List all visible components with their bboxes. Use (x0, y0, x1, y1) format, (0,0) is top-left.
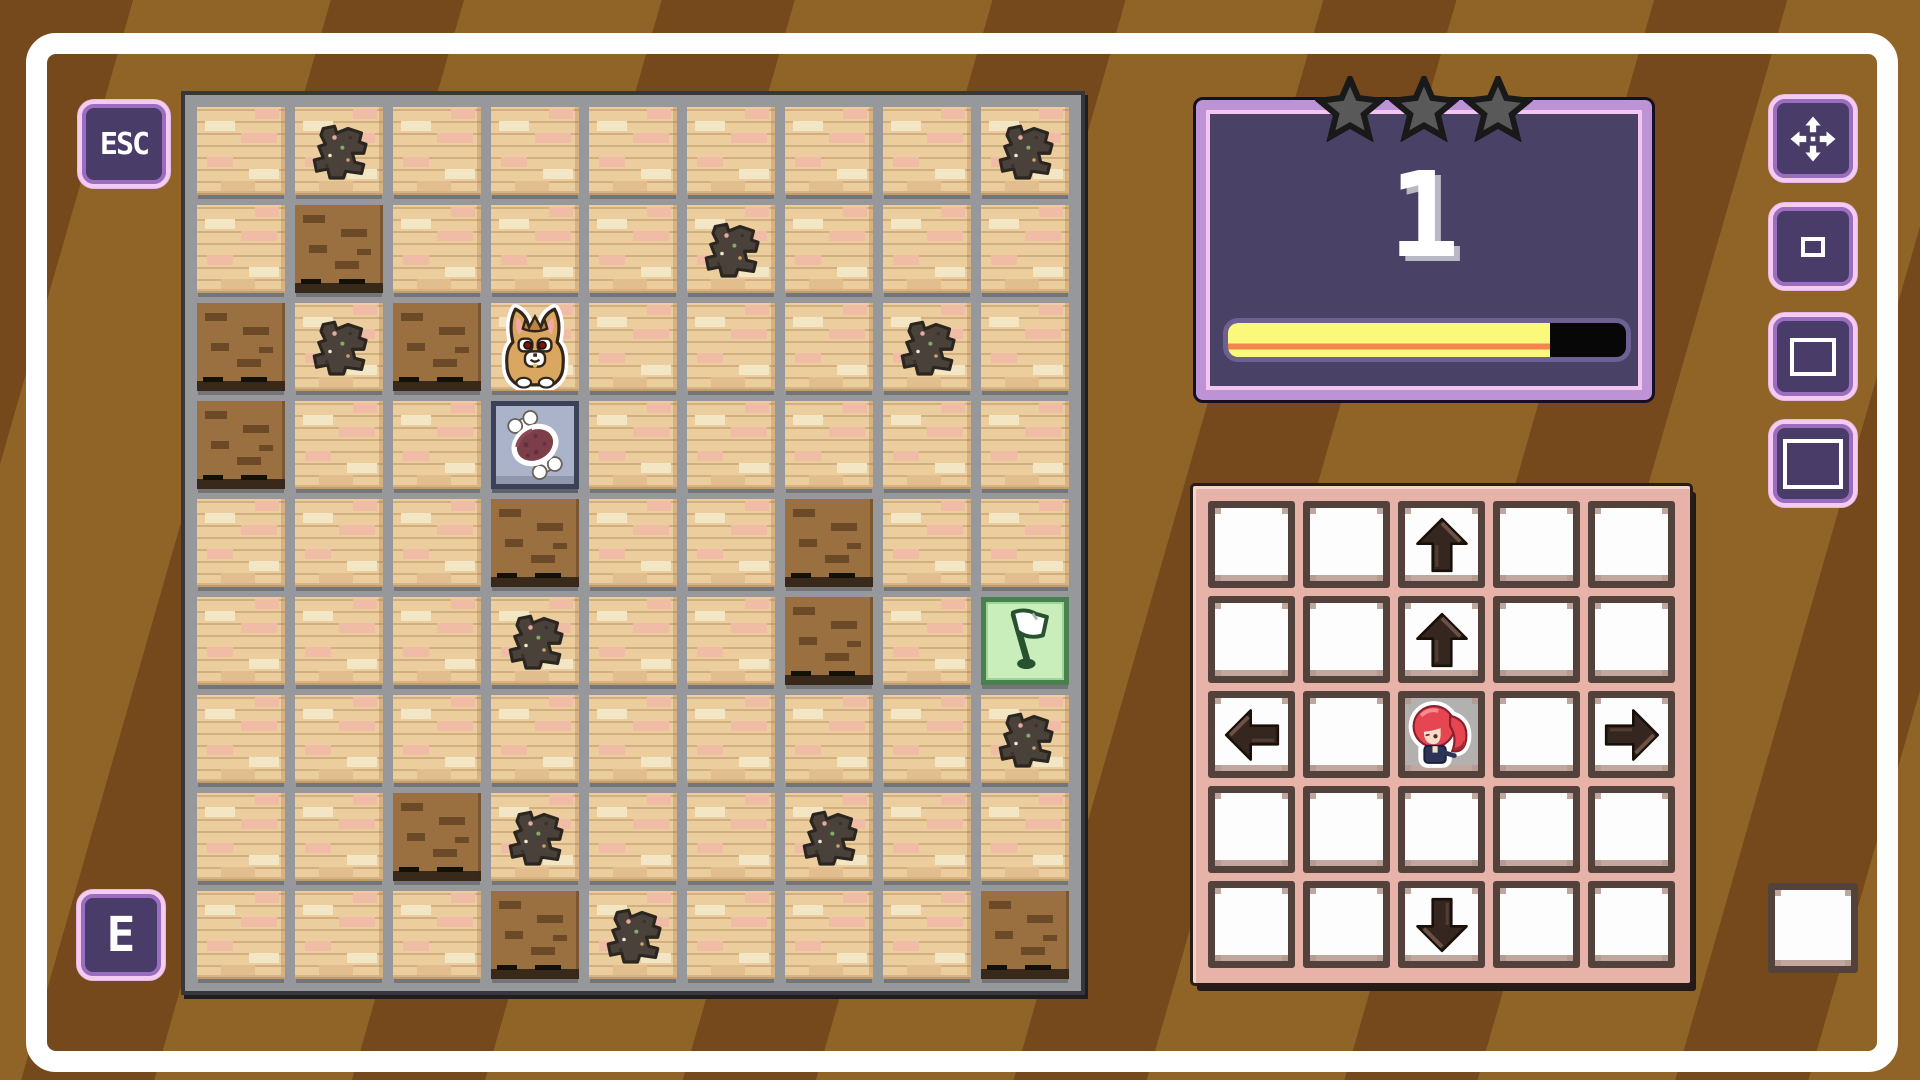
board-tile-dirt-floor (491, 891, 579, 979)
pad-empty-slot[interactable] (1303, 596, 1390, 683)
board-tile-brick-floor (883, 499, 971, 587)
dirt-splat-sprite (989, 115, 1061, 187)
dirt-splat-sprite (793, 801, 865, 873)
esc-button[interactable]: ESC (78, 100, 170, 188)
view-small-button[interactable] (1769, 203, 1857, 290)
board-tile-brick-floor (393, 891, 481, 979)
pad-empty-slot[interactable] (1303, 881, 1390, 968)
pad-arrow-up[interactable] (1398, 596, 1485, 683)
board-tile-brick-floor (393, 695, 481, 783)
board-tile-brick-floor (393, 401, 481, 489)
board-tile-dirt-splat (981, 107, 1069, 195)
star-icon (1315, 76, 1385, 142)
player-character-sprite (1405, 696, 1478, 774)
board-tile-brick-floor (687, 695, 775, 783)
pad-empty-slot[interactable] (1208, 596, 1295, 683)
board-tile-brick-floor (589, 205, 677, 293)
pad-empty-slot[interactable] (1208, 786, 1295, 873)
board-tile-brick-floor (295, 793, 383, 881)
board-tile-brick-floor (687, 793, 775, 881)
arrow-down-icon (1411, 894, 1473, 956)
board-tile-dirt-splat (589, 891, 677, 979)
board-tile-dirt-splat (295, 107, 383, 195)
star-rating (1196, 76, 1652, 146)
esc-button-label: ESC (100, 127, 148, 162)
dirt-splat-sprite (891, 311, 963, 383)
board-tile-dirt-splat (687, 205, 775, 293)
view-large-button[interactable] (1769, 420, 1857, 507)
pad-empty-slot[interactable] (1493, 881, 1580, 968)
pad-empty-slot[interactable] (1493, 596, 1580, 683)
board-tile-brick-floor (981, 793, 1069, 881)
level-number: 1 (1196, 156, 1652, 274)
board-tile-brick-floor (883, 793, 971, 881)
board-tile-brick-floor (981, 499, 1069, 587)
board-tile-brick-floor (785, 205, 873, 293)
pad-empty-slot[interactable] (1398, 786, 1485, 873)
board-tile-brick-floor (197, 107, 285, 195)
board-tile-brick-floor (197, 597, 285, 685)
goal-flag-sprite (990, 606, 1060, 676)
player-fox-sprite (493, 303, 577, 391)
star-icon (1315, 76, 1385, 146)
pad-empty-slot[interactable] (1303, 691, 1390, 778)
pad-empty-slot[interactable] (1303, 501, 1390, 588)
board-tile-brick-floor (589, 107, 677, 195)
board-tile-brick-floor (883, 891, 971, 979)
board-tile-brick-floor (883, 597, 971, 685)
board-tile-brick-floor (883, 695, 971, 783)
star-icon (1463, 76, 1533, 142)
board-tile-brick-floor (687, 303, 775, 391)
move-tool-button[interactable] (1769, 95, 1857, 182)
pad-empty-slot[interactable] (1588, 881, 1675, 968)
pad-empty-slot[interactable] (1588, 786, 1675, 873)
board-tile-brick-floor (197, 499, 285, 587)
board-tile-dirt-floor (197, 401, 285, 489)
board-tile-dirt-splat (295, 303, 383, 391)
command-pad (1190, 483, 1693, 986)
pad-empty-slot[interactable] (1208, 881, 1295, 968)
arrow-right-icon (1601, 704, 1663, 766)
dirt-splat-sprite (499, 801, 571, 873)
arrow-up-icon (1411, 514, 1473, 576)
board-tile-brick-floor (197, 891, 285, 979)
pad-empty-slot[interactable] (1588, 596, 1675, 683)
game-board (181, 91, 1085, 995)
interact-e-button[interactable]: E (77, 890, 165, 980)
progress-bar (1223, 318, 1631, 362)
board-tile-dirt-floor (197, 303, 285, 391)
pad-arrow-right[interactable] (1588, 691, 1675, 778)
move-arrows-icon (1786, 112, 1840, 166)
board-tile-brick-floor (295, 695, 383, 783)
dirt-splat-sprite (303, 311, 375, 383)
board-tile-brick-floor (981, 401, 1069, 489)
spare-command-slot[interactable] (1768, 883, 1858, 973)
board-tile-brick-floor (295, 401, 383, 489)
board-tile-brick-floor (393, 107, 481, 195)
star-icon (1389, 76, 1459, 142)
board-tile-brick-floor (589, 695, 677, 783)
board-tile-brick-floor (589, 793, 677, 881)
board-tile-dirt-splat (785, 793, 873, 881)
view-medium-button[interactable] (1769, 313, 1857, 400)
board-tile-brick-floor (197, 695, 285, 783)
board-tile-brick-floor (981, 205, 1069, 293)
board-tile-goal-flag (981, 597, 1069, 685)
board-tile-brick-floor (589, 597, 677, 685)
board-tile-dirt-splat (981, 695, 1069, 783)
pad-empty-slot[interactable] (1303, 786, 1390, 873)
board-tile-brick-floor (295, 597, 383, 685)
board-tile-dirt-splat (491, 793, 579, 881)
board-tile-dirt-floor (393, 303, 481, 391)
pad-empty-slot[interactable] (1588, 501, 1675, 588)
board-tile-dirt-floor (981, 891, 1069, 979)
game-screen: { "hud": { "esc_button_label": "ESC", "i… (0, 0, 1920, 1080)
pad-empty-slot[interactable] (1493, 691, 1580, 778)
board-tile-dirt-splat (883, 303, 971, 391)
board-tile-dirt-floor (785, 499, 873, 587)
progress-bar-fill (1228, 323, 1550, 357)
board-tile-brick-floor (393, 597, 481, 685)
board-tile-brick-floor (197, 793, 285, 881)
board-tile-brick-floor (295, 891, 383, 979)
board-tile-brick-floor (883, 205, 971, 293)
square-medium-icon (1790, 338, 1836, 376)
board-tile-brick-floor (687, 597, 775, 685)
square-large-icon (1783, 439, 1843, 489)
dirt-splat-sprite (303, 115, 375, 187)
dirt-splat-sprite (989, 703, 1061, 775)
board-tile-brick-floor (785, 401, 873, 489)
board-tile-dirt-floor (491, 499, 579, 587)
board-tile-brick-floor (589, 401, 677, 489)
board-tile-dirt-splat (491, 597, 579, 685)
pad-arrow-up[interactable] (1398, 501, 1485, 588)
board-tile-brick-floor (589, 499, 677, 587)
board-tile-brick-floor (785, 891, 873, 979)
pad-empty-slot[interactable] (1493, 501, 1580, 588)
board-tile-brick-floor (491, 205, 579, 293)
arrow-up-icon (1411, 609, 1473, 671)
board-tile-brick-floor (687, 891, 775, 979)
star-icon (1463, 76, 1533, 146)
board-tile-brick-floor (197, 205, 285, 293)
board-tile-brick-floor (687, 401, 775, 489)
arrow-left-icon (1221, 704, 1283, 766)
board-tile-brick-floor (491, 107, 579, 195)
dirt-splat-sprite (597, 899, 669, 971)
board-tile-meat-item (491, 401, 579, 489)
dirt-splat-sprite (695, 213, 767, 285)
interact-e-button-label: E (107, 907, 136, 963)
board-tile-brick-floor (883, 401, 971, 489)
star-icon (1389, 76, 1459, 146)
pad-empty-slot[interactable] (1208, 501, 1295, 588)
board-tile-brick-floor (687, 107, 775, 195)
board-tile-dirt-floor (393, 793, 481, 881)
board-tile-brick-floor (981, 303, 1069, 391)
pad-character-card[interactable] (1398, 691, 1485, 778)
board-tile-dirt-floor (785, 597, 873, 685)
pad-empty-slot[interactable] (1493, 786, 1580, 873)
dirt-splat-sprite (499, 605, 571, 677)
square-small-icon (1801, 237, 1825, 257)
board-tile-brick-floor (785, 303, 873, 391)
board-tile-brick-floor (785, 107, 873, 195)
board-tile-brick-floor (785, 695, 873, 783)
board-tile-brick-floor (589, 303, 677, 391)
board-tile-brick-floor (491, 695, 579, 783)
board-tile-brick-floor (295, 499, 383, 587)
pad-arrow-left[interactable] (1208, 691, 1295, 778)
board-tile-player-fox (491, 303, 579, 391)
board-tile-brick-floor (393, 205, 481, 293)
board-tile-brick-floor (393, 499, 481, 587)
level-panel: 1 (1193, 97, 1655, 403)
meat-item-sprite (499, 409, 571, 481)
board-tile-dirt-floor (295, 205, 383, 293)
board-tile-brick-floor (883, 107, 971, 195)
board-tile-brick-floor (687, 499, 775, 587)
pad-arrow-down[interactable] (1398, 881, 1485, 968)
